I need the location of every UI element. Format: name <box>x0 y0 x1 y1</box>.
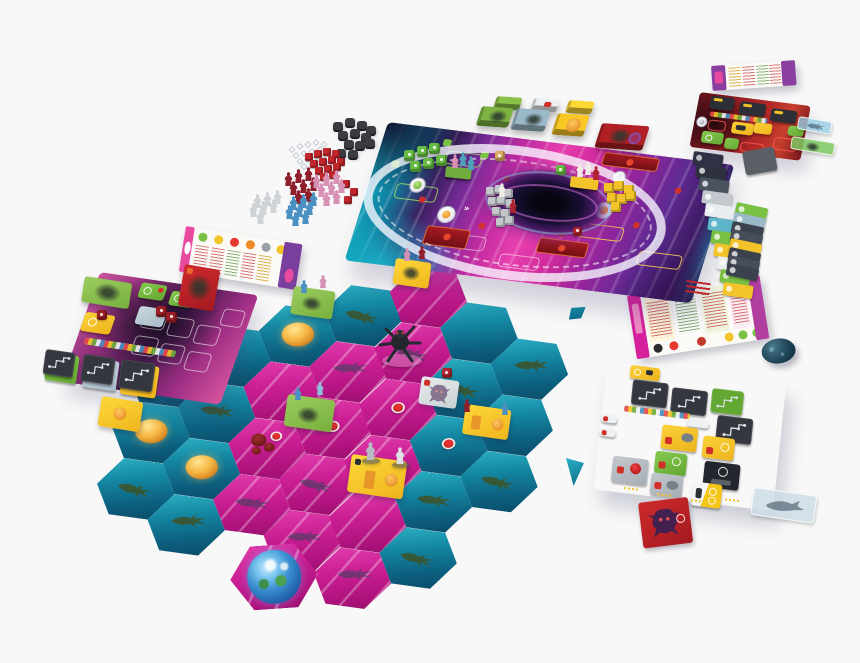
tile-icon <box>708 487 717 496</box>
yellow-tile <box>731 121 755 136</box>
green-die <box>417 146 428 157</box>
green-die <box>436 155 447 166</box>
ref-text-column <box>742 66 755 86</box>
ref-icon <box>214 235 224 245</box>
card-art <box>113 406 128 421</box>
circuit-icon <box>635 383 665 405</box>
frosted-strip <box>750 487 817 524</box>
ref-text-column <box>240 252 257 280</box>
creature-icon <box>168 513 209 528</box>
yellow-tile <box>660 424 698 452</box>
edge-chip <box>601 414 618 424</box>
tile-oval <box>666 480 679 490</box>
rules-tile-gray <box>742 146 778 175</box>
ref-icon <box>696 336 706 346</box>
wave-mark <box>624 485 638 491</box>
tile-icon <box>142 287 153 296</box>
red-cube <box>314 150 322 158</box>
gray-cube <box>497 196 506 205</box>
ref-edge-purple <box>781 60 797 86</box>
ref-text-column <box>728 67 741 87</box>
tile-chip <box>658 461 666 469</box>
yellow-cube <box>604 183 614 193</box>
threat-token <box>390 401 406 414</box>
circuit-icon <box>84 357 112 379</box>
split-tile <box>690 481 722 509</box>
planet-disc <box>183 453 221 481</box>
strip-glyph <box>804 120 827 133</box>
wave-mark <box>657 491 671 497</box>
token-dark <box>344 140 354 148</box>
threat-token <box>440 437 456 450</box>
dark-tile <box>709 95 735 111</box>
tile-mark <box>735 125 746 131</box>
explore-card-green <box>290 286 335 320</box>
card-art <box>185 273 213 303</box>
wave-mark <box>725 496 739 502</box>
alien-mech-miniature <box>376 321 424 365</box>
tile-icon <box>634 368 642 376</box>
ref-icon <box>229 237 239 247</box>
slot-red <box>707 119 727 132</box>
board-chip-red <box>674 188 682 194</box>
tile-mark <box>695 488 702 499</box>
tile-chip <box>157 288 164 293</box>
card-yellow-small <box>565 100 595 115</box>
red-cube <box>344 196 352 204</box>
creature-icon <box>334 567 375 582</box>
circuit-tile <box>80 354 115 385</box>
red-cube <box>323 148 331 156</box>
card-chip <box>424 379 431 386</box>
circuit-tile <box>631 379 669 408</box>
slot-outline <box>192 324 222 346</box>
circuit-icon <box>122 363 153 387</box>
tile-icon <box>708 496 717 505</box>
tile-icon <box>720 442 730 452</box>
tile-chip <box>617 466 625 474</box>
tile-chip <box>743 104 752 108</box>
token-stack-green <box>476 106 514 128</box>
green-die <box>429 143 440 154</box>
crystal-piece <box>304 141 311 148</box>
token-stack-yellow <box>551 113 590 137</box>
asteroid <box>251 447 262 456</box>
stack-art <box>564 118 582 133</box>
red-die <box>442 368 452 378</box>
asteroid <box>263 442 276 452</box>
ref-icon <box>724 332 734 342</box>
tile-chip <box>646 370 653 376</box>
tabletop-scene: Space-themed board game components laid … <box>0 0 860 663</box>
edge-chip <box>599 428 616 438</box>
explore-card-yellow <box>392 258 431 289</box>
token-stack-blue <box>510 108 551 132</box>
creature-icon <box>412 490 455 510</box>
yellow-tile <box>753 122 773 135</box>
creature-icon <box>231 493 274 513</box>
green-tile <box>724 137 740 150</box>
stack-chip <box>543 102 552 107</box>
tile-chip <box>774 110 783 114</box>
dark-tile <box>769 108 797 124</box>
tile-icon <box>705 134 713 142</box>
station-disc <box>695 116 708 128</box>
yellow-cube <box>611 202 621 212</box>
stack-art <box>487 110 509 124</box>
ref-icon <box>245 240 255 250</box>
tile-chip <box>665 437 673 445</box>
whale-icon <box>762 494 808 517</box>
tile-oval <box>681 433 694 443</box>
card-chip <box>186 267 193 274</box>
yellow-cube <box>614 181 624 191</box>
gray-cube <box>488 197 497 206</box>
gray-tile <box>611 455 649 485</box>
card-deck-red <box>594 123 650 151</box>
token-dark <box>333 122 343 130</box>
tile-disc <box>630 463 642 475</box>
green-tile <box>137 282 168 301</box>
token-dark <box>338 131 348 139</box>
reference-card-topright <box>711 60 797 91</box>
red-die <box>166 312 177 323</box>
creature-icon <box>394 547 438 572</box>
creature-icon <box>112 477 156 502</box>
card-chip <box>355 459 362 466</box>
token-dark <box>350 129 360 137</box>
ref-edge-mark <box>714 71 723 84</box>
card-art <box>296 406 320 425</box>
red-die <box>97 310 107 320</box>
token-dark <box>355 141 365 149</box>
creature-icon <box>330 361 371 376</box>
card-art <box>301 295 323 312</box>
crystal-piece <box>296 143 303 150</box>
green-die <box>410 161 421 172</box>
circuit-tile <box>118 359 156 392</box>
circuit-icon <box>45 351 73 373</box>
threat-token <box>269 431 283 442</box>
tile-icon <box>671 457 681 467</box>
card-art <box>491 418 505 432</box>
token-dark <box>345 118 355 126</box>
red-cube <box>350 188 358 196</box>
plastic-fragment <box>566 458 584 486</box>
crystal-piece <box>300 163 307 170</box>
planet-disc <box>279 321 317 349</box>
ref-icon <box>261 242 271 252</box>
stack-art <box>523 113 545 127</box>
ref-icon <box>198 232 208 242</box>
tile-chip <box>654 482 662 490</box>
red-cube <box>333 163 341 171</box>
creature-icon <box>294 473 338 498</box>
ref-text-column <box>769 64 781 84</box>
creature-icon <box>284 529 325 544</box>
explore-card-green <box>284 394 336 432</box>
card-mark <box>363 470 375 489</box>
ref-icon <box>669 341 679 351</box>
yellow-cube <box>626 191 636 201</box>
slot-outline <box>219 308 247 328</box>
card-chip <box>676 513 686 523</box>
card-art <box>401 265 421 281</box>
gray-cube <box>486 187 495 196</box>
token-dark <box>348 150 358 158</box>
mission-card-yellow <box>97 396 143 432</box>
green-die <box>404 150 415 161</box>
crystal-piece <box>312 139 319 146</box>
alien-card-red <box>638 497 693 549</box>
ref-icon <box>738 330 748 340</box>
ref-text-column <box>255 255 272 283</box>
tile-chip <box>601 430 606 436</box>
tile-chip <box>714 98 723 102</box>
earth-globe <box>245 548 303 606</box>
gray-cube <box>492 207 501 216</box>
ref-text-column <box>756 65 769 85</box>
tile-chip <box>706 447 714 455</box>
creature-icon <box>511 358 552 373</box>
circuit-tile <box>43 349 76 378</box>
creature-card-red <box>178 264 221 312</box>
gray-cube <box>505 216 514 225</box>
circuit-icon <box>713 391 741 412</box>
tile-chip <box>603 416 608 422</box>
tan-die <box>495 151 505 161</box>
moon-token <box>760 336 797 365</box>
green-tile <box>700 130 724 145</box>
creature-icon <box>475 470 519 495</box>
ref-text-column <box>224 250 241 278</box>
red-die <box>573 227 582 236</box>
circuit-icon <box>674 391 704 413</box>
card-art <box>93 282 121 304</box>
ref-icon <box>653 343 663 353</box>
gray-cube <box>496 218 505 227</box>
tile-icon <box>717 466 728 477</box>
slot-outline <box>183 351 213 373</box>
strip-glyph <box>805 141 820 152</box>
yellow-tile <box>701 435 735 461</box>
circuit-tile-green <box>710 388 744 416</box>
card-art <box>384 473 399 488</box>
green-die <box>423 158 434 169</box>
explore-card-gray <box>418 376 460 409</box>
card-mark <box>471 415 482 430</box>
token-dark <box>365 139 375 147</box>
green-die <box>556 165 566 175</box>
